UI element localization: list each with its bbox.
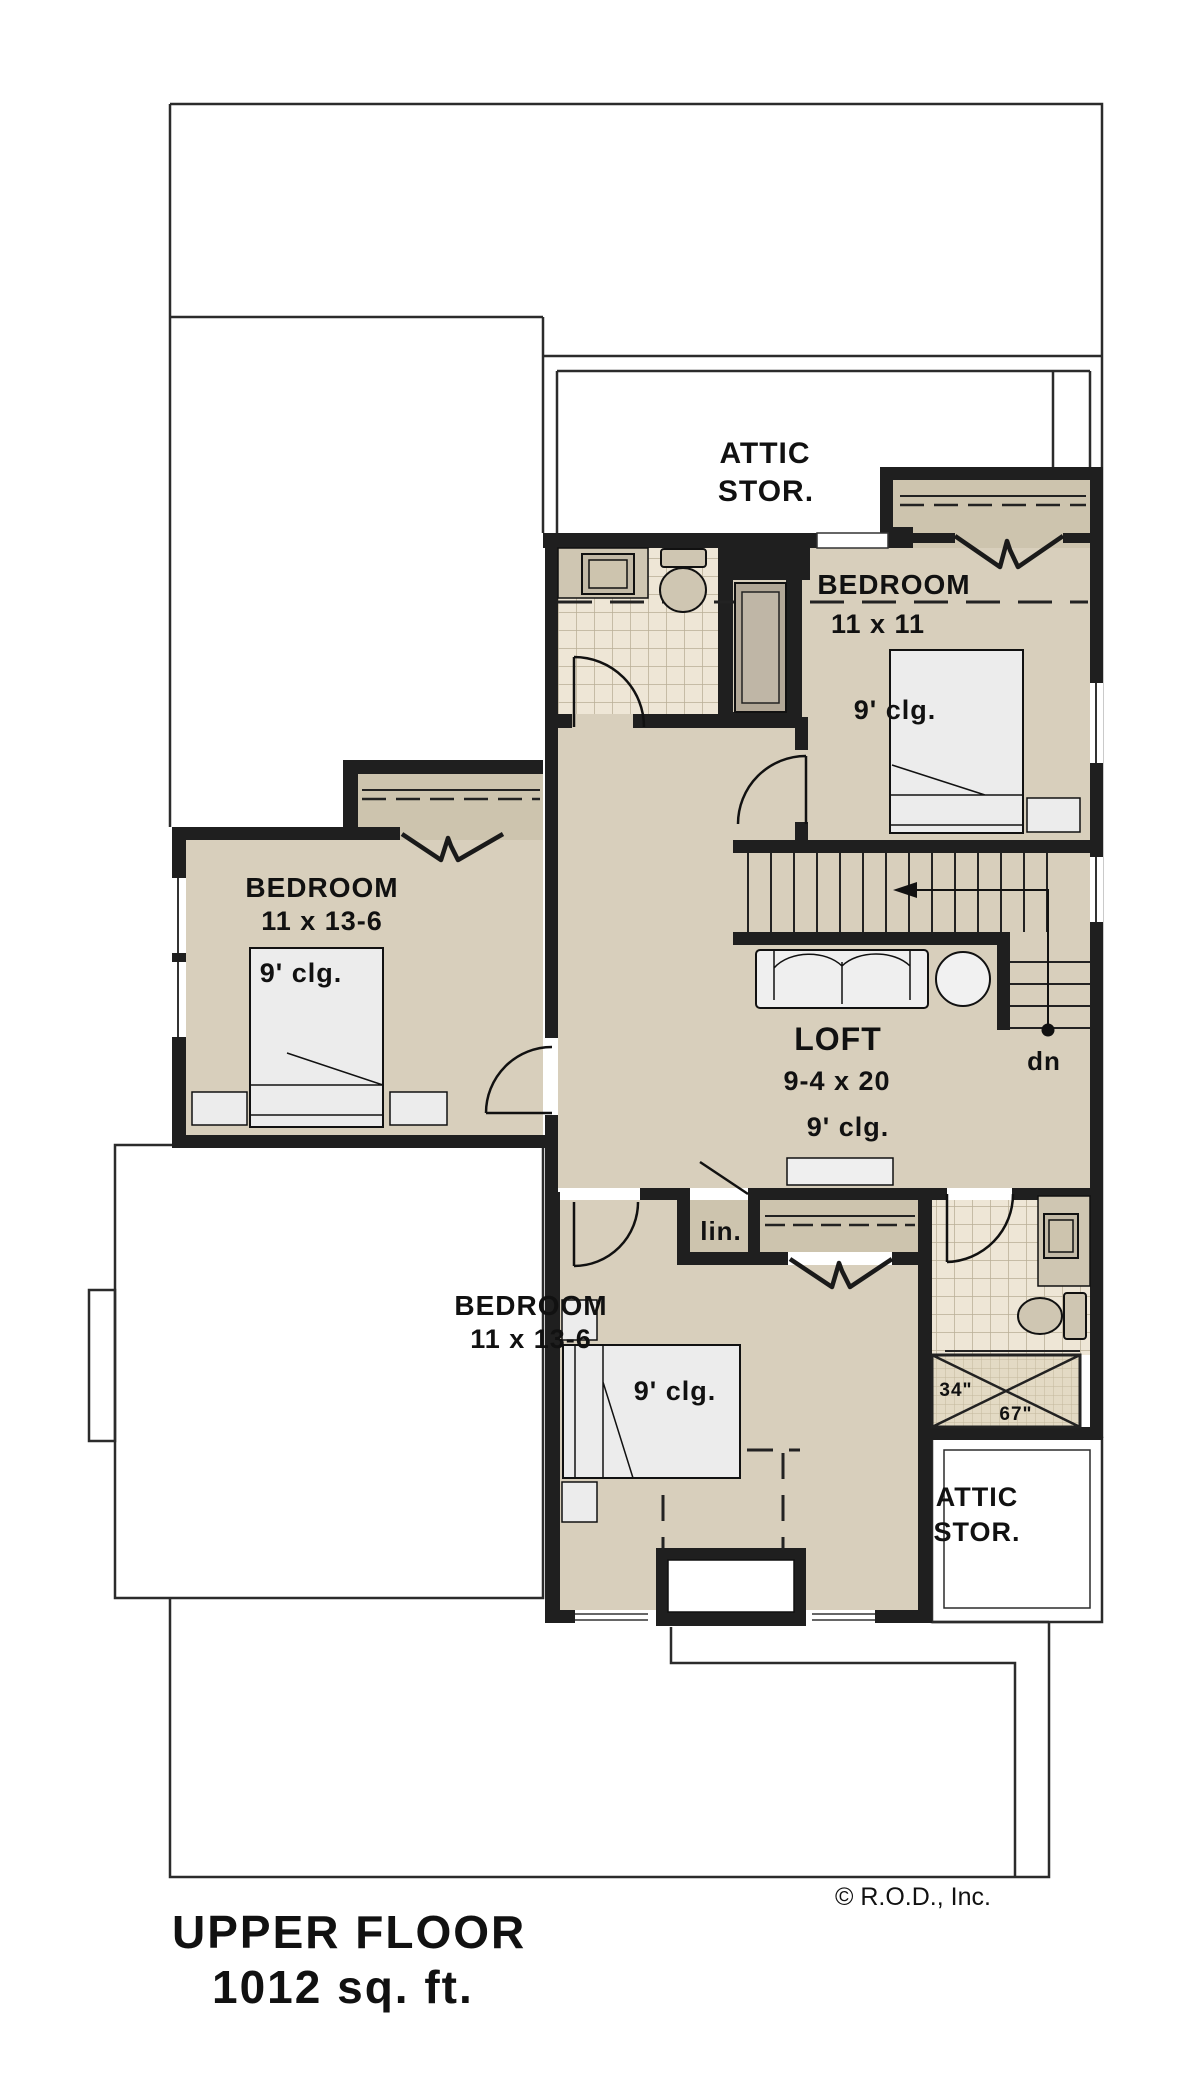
label-attic-top-2: STOR. — [718, 475, 814, 508]
outline-ridge-left — [170, 317, 543, 533]
nightstand — [1027, 798, 1080, 832]
toilet-tank-top — [661, 549, 706, 567]
label-bedroom-bottom: BEDROOM — [454, 1290, 607, 1321]
bed-bottom — [563, 1345, 740, 1478]
bay-window — [668, 1560, 794, 1612]
bed-right — [890, 650, 1023, 833]
floor-door-nook — [560, 1200, 677, 1265]
label-attic-bottom-1: ATTIC — [936, 1482, 1018, 1512]
footer: © R.O.D., Inc. UPPER FLOOR 1012 sq. ft. — [172, 1883, 991, 2013]
label-loft-clg: 9' clg. — [807, 1112, 889, 1142]
label-stairs-down: dn — [1027, 1046, 1061, 1076]
toilet-bowl-top — [660, 568, 706, 612]
label-bedroom-bottom-clg: 9' clg. — [634, 1376, 716, 1406]
nightstand — [192, 1092, 247, 1125]
nightstand — [390, 1092, 447, 1125]
round-table — [936, 952, 990, 1006]
label-loft-dims: 9-4 x 20 — [783, 1066, 890, 1096]
label-loft: LOFT — [794, 1021, 882, 1057]
console-table — [787, 1158, 893, 1185]
outline-lower-roof — [170, 1598, 1049, 1877]
label-bedroom-right-dims: 11 x 11 — [831, 609, 925, 639]
label-attic-bottom-2: STOR. — [933, 1517, 1020, 1547]
label-bedroom-left-clg: 9' clg. — [260, 958, 342, 988]
label-bedroom-right: BEDROOM — [817, 569, 970, 600]
floor-plan-drawing: ATTIC STOR. BEDROOM 11 x 11 9' clg. BEDR… — [0, 0, 1200, 2081]
floor-hall — [558, 714, 802, 844]
label-shower-width: 34" — [939, 1380, 972, 1401]
label-bedroom-left: BEDROOM — [245, 872, 398, 903]
stair-start-dot — [1042, 1024, 1055, 1037]
floor-plan-page: ATTIC STOR. BEDROOM 11 x 11 9' clg. BEDR… — [0, 0, 1200, 2081]
label-linen: lin. — [700, 1216, 742, 1246]
page-title-line1: UPPER FLOOR — [172, 1906, 526, 1958]
label-attic-top-1: ATTIC — [719, 437, 810, 470]
page-title-line2: 1012 sq. ft. — [212, 1961, 474, 2013]
toilet-tank-bottom — [1064, 1293, 1086, 1339]
attic-window-bedroom-right — [817, 533, 888, 548]
toilet-bowl-bottom — [1018, 1298, 1062, 1334]
outline-garage-bump — [89, 1290, 115, 1441]
label-bedroom-left-dims: 11 x 13-6 — [261, 906, 383, 936]
outline-garage-roof — [115, 1145, 543, 1598]
label-bedroom-bottom-dims: 11 x 13-6 — [470, 1324, 592, 1354]
nightstand — [562, 1482, 597, 1522]
label-shower-length: 67" — [999, 1404, 1032, 1425]
label-bedroom-right-clg: 9' clg. — [854, 695, 936, 725]
copyright-text: © R.O.D., Inc. — [835, 1883, 991, 1911]
